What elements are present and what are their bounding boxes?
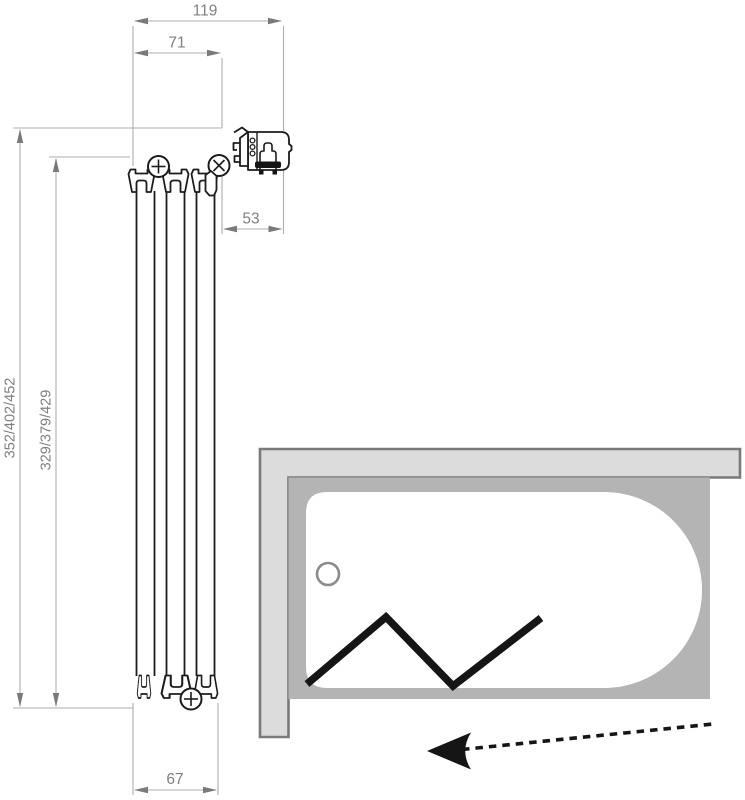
bathtub-plan (260, 449, 740, 770)
dim-label-height-outer: 352/402/452 (3, 378, 19, 459)
arrow-icon (17, 129, 23, 143)
drawing-canvas: 119 71 53 67 352/402/452 329/379/429 (0, 0, 745, 800)
arrow-icon (134, 18, 148, 24)
technical-drawing: 119 71 53 67 352/402/452 329/379/429 (0, 0, 745, 800)
arrow-dashed-shaft (462, 724, 713, 750)
arrow-icon (207, 50, 221, 56)
hinges (148, 155, 230, 710)
fold-direction-arrow-icon (427, 724, 713, 770)
arrow-icon (203, 787, 217, 793)
arrow-icon (268, 18, 282, 24)
dimension-labels: 119 71 53 67 352/402/452 329/379/429 (3, 3, 260, 789)
screen-panels-section (129, 155, 230, 710)
wall-profile-foot (273, 170, 278, 175)
dim-label-119: 119 (193, 3, 218, 20)
dim-label-53: 53 (242, 211, 259, 228)
wall-profile-left-chamber (240, 132, 248, 166)
tub-interior (306, 492, 702, 688)
drain-icon (317, 563, 339, 585)
dimension-arrows (17, 18, 283, 793)
dim-label-height-inner: 329/379/429 (39, 390, 55, 471)
dim-label-67: 67 (166, 771, 183, 788)
arrow-icon (53, 158, 59, 172)
arrow-icon (53, 693, 59, 707)
arrow-icon (134, 787, 148, 793)
bottom-profile-cap (137, 676, 151, 699)
wall-profile-screw-bar (255, 162, 281, 169)
wall-profile-foot (259, 170, 264, 175)
arrow-icon (17, 693, 23, 707)
arrow-icon (269, 226, 283, 232)
dim-label-71: 71 (168, 35, 185, 52)
arrow-icon (223, 226, 237, 232)
wall-profile-hook (234, 143, 241, 162)
wall-bracket-below-hinge (206, 171, 217, 196)
wall-profile-roof-flange (234, 128, 248, 133)
arrow-icon (134, 50, 148, 56)
